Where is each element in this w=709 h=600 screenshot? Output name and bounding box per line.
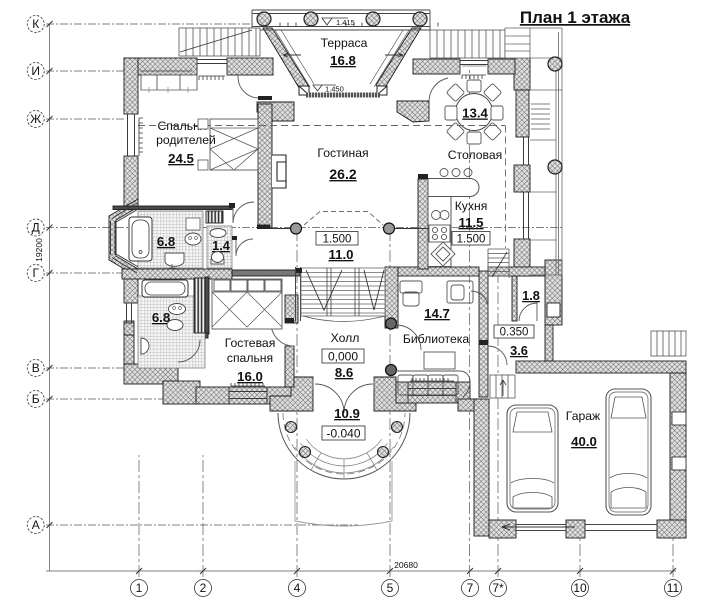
svg-text:1.500: 1.500 <box>323 234 352 246</box>
svg-text:19200: 19200 <box>34 238 44 262</box>
svg-text:11.0: 11.0 <box>329 247 354 262</box>
svg-text:10.9: 10.9 <box>334 406 360 421</box>
svg-text:К: К <box>32 17 39 31</box>
svg-text:3.6: 3.6 <box>510 343 528 358</box>
svg-text:Столовая: Столовая <box>448 148 503 162</box>
svg-text:16.0: 16.0 <box>237 369 263 384</box>
svg-text:-0.040: -0.040 <box>326 427 360 441</box>
svg-text:1.4: 1.4 <box>212 238 231 253</box>
svg-text:1.8: 1.8 <box>522 288 540 303</box>
svg-text:11.5: 11.5 <box>459 215 484 230</box>
svg-text:И: И <box>31 64 40 78</box>
svg-text:16.8: 16.8 <box>330 53 356 68</box>
svg-text:Холл: Холл <box>331 331 360 345</box>
svg-text:Гараж: Гараж <box>566 409 601 423</box>
svg-text:14.7: 14.7 <box>424 306 450 321</box>
svg-text:7: 7 <box>467 581 474 595</box>
svg-text:План 1 этажа: План 1 этажа <box>520 8 631 27</box>
svg-text:6.8: 6.8 <box>157 234 175 249</box>
svg-text:26.2: 26.2 <box>329 166 356 182</box>
svg-text:Г: Г <box>32 266 39 280</box>
svg-text:Б: Б <box>32 392 40 406</box>
svg-text:24.5: 24.5 <box>168 151 194 166</box>
svg-text:1.500: 1.500 <box>457 234 486 246</box>
svg-text:4: 4 <box>294 581 301 595</box>
svg-text:2: 2 <box>200 581 207 595</box>
svg-text:20680: 20680 <box>394 560 418 570</box>
svg-text:А: А <box>32 518 40 532</box>
svg-text:спальня: спальня <box>227 351 273 365</box>
svg-text:1: 1 <box>136 581 143 595</box>
svg-text:10: 10 <box>573 581 587 595</box>
svg-text:родителей: родителей <box>156 133 216 147</box>
svg-text:Гостиная: Гостиная <box>317 146 368 160</box>
svg-text:Библиотека: Библиотека <box>403 332 469 346</box>
svg-text:7*: 7* <box>492 581 504 595</box>
svg-text:Д: Д <box>32 221 40 235</box>
svg-text:0.350: 0.350 <box>500 327 529 339</box>
svg-text:Гостевая: Гостевая <box>225 336 276 350</box>
svg-text:1.415: 1.415 <box>336 18 355 27</box>
svg-text:Ж: Ж <box>30 112 41 126</box>
svg-text:13.4: 13.4 <box>462 106 488 121</box>
svg-text:40.0: 40.0 <box>571 434 597 449</box>
svg-text:Кухня: Кухня <box>455 199 488 213</box>
svg-text:1.450: 1.450 <box>325 85 344 94</box>
svg-text:0,000: 0,000 <box>328 350 358 364</box>
svg-text:5: 5 <box>387 581 394 595</box>
svg-text:11: 11 <box>667 581 680 595</box>
svg-text:Терраса: Терраса <box>321 36 368 50</box>
svg-text:8.6: 8.6 <box>335 365 353 380</box>
svg-text:В: В <box>32 361 40 375</box>
